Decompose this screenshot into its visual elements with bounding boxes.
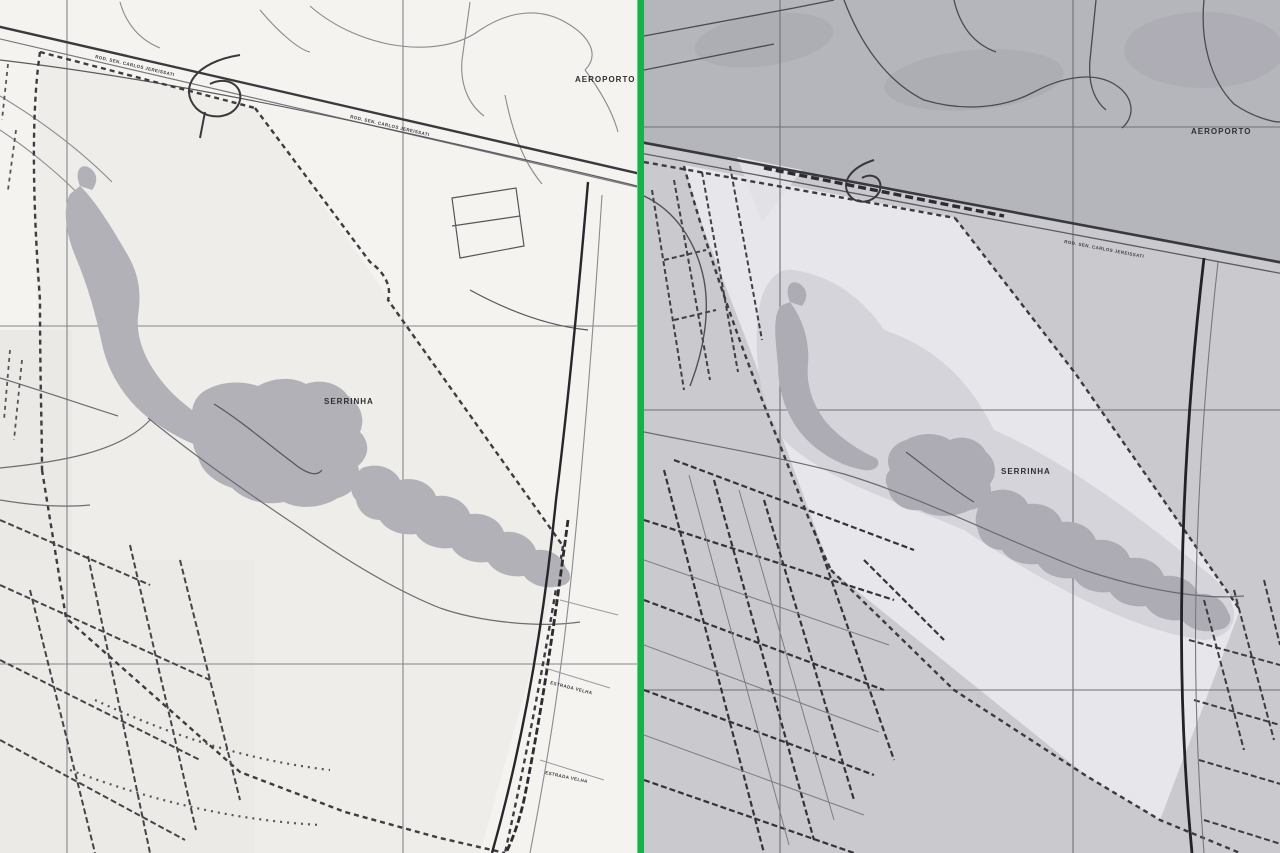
map-scan-left: AEROPORTO SERRINHA ROD. SEN. CARLOS JERE… <box>0 0 637 853</box>
right-map-canvas: AEROPORTO SERRINHA ROD. SEN. CARLOS JERE… <box>644 0 1280 853</box>
left-aeroporto-label: AEROPORTO <box>575 75 635 84</box>
right-serrinha-label: SERRINHA <box>1001 467 1051 476</box>
map-comparison-figure: AEROPORTO SERRINHA ROD. SEN. CARLOS JERE… <box>0 0 1280 853</box>
map-scan-right: AEROPORTO SERRINHA ROD. SEN. CARLOS JERE… <box>644 0 1280 853</box>
right-aeroporto-label: AEROPORTO <box>1191 127 1251 136</box>
left-serrinha-label: SERRINHA <box>324 397 374 406</box>
left-map-canvas: AEROPORTO SERRINHA ROD. SEN. CARLOS JERE… <box>0 0 637 853</box>
right-serrinha-mass <box>886 434 995 516</box>
